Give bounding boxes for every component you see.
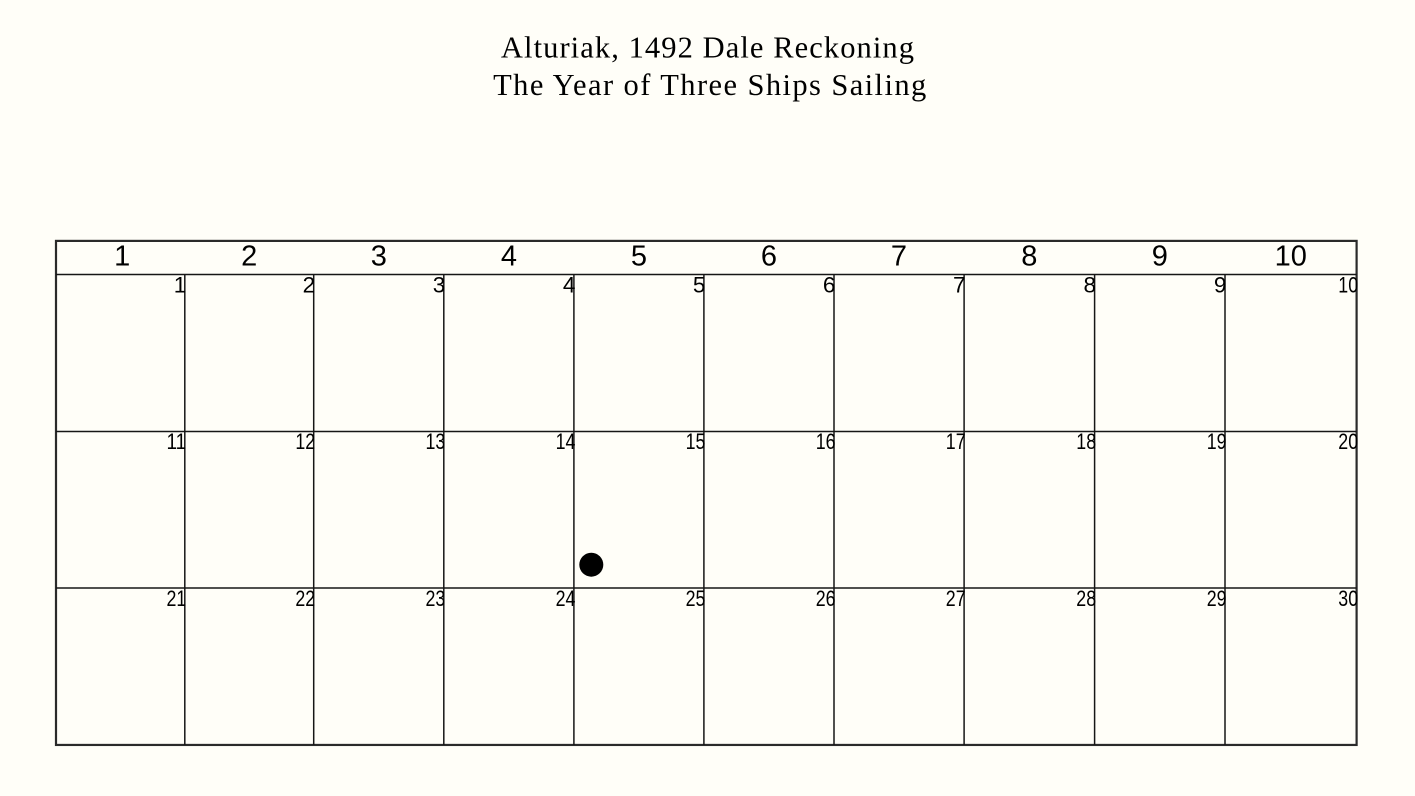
- svg-text:The Year of Three Ships Sailin: The Year of Three Ships Sailing: [493, 68, 928, 102]
- svg-text:13: 13: [426, 429, 446, 454]
- svg-text:1: 1: [114, 241, 130, 273]
- svg-text:14: 14: [556, 429, 576, 454]
- svg-text:6: 6: [761, 241, 777, 273]
- svg-text:1: 1: [174, 272, 187, 297]
- svg-text:8: 8: [1021, 241, 1037, 273]
- svg-text:30: 30: [1338, 586, 1358, 611]
- svg-text:28: 28: [1076, 586, 1096, 611]
- svg-text:20: 20: [1338, 429, 1358, 454]
- svg-text:11: 11: [167, 429, 187, 454]
- svg-text:3: 3: [433, 272, 446, 297]
- svg-text:2: 2: [303, 272, 316, 297]
- svg-text:4: 4: [563, 272, 576, 297]
- svg-text:5: 5: [631, 241, 647, 273]
- svg-text:7: 7: [953, 272, 966, 297]
- svg-text:2: 2: [241, 241, 257, 273]
- svg-text:8: 8: [1084, 272, 1097, 297]
- svg-text:25: 25: [686, 586, 706, 611]
- svg-text:27: 27: [946, 586, 966, 611]
- svg-text:7: 7: [891, 241, 907, 273]
- svg-text:4: 4: [501, 241, 517, 273]
- svg-text:22: 22: [295, 586, 315, 611]
- svg-text:29: 29: [1207, 586, 1227, 611]
- svg-text:16: 16: [816, 429, 836, 454]
- svg-text:21: 21: [167, 586, 187, 611]
- svg-text:24: 24: [556, 586, 576, 611]
- svg-text:15: 15: [686, 429, 706, 454]
- svg-text:12: 12: [295, 429, 315, 454]
- svg-text:10: 10: [1338, 272, 1358, 297]
- svg-text:5: 5: [693, 272, 706, 297]
- svg-text:19: 19: [1207, 429, 1227, 454]
- svg-text:3: 3: [371, 241, 387, 273]
- svg-text:17: 17: [946, 429, 966, 454]
- svg-text:23: 23: [426, 586, 446, 611]
- svg-text:18: 18: [1076, 429, 1096, 454]
- svg-text:6: 6: [823, 272, 836, 297]
- svg-text:9: 9: [1152, 241, 1168, 273]
- svg-text:10: 10: [1275, 241, 1307, 273]
- svg-text:26: 26: [816, 586, 836, 611]
- svg-text:Alturiak, 1492 Dale Reckoning: Alturiak, 1492 Dale Reckoning: [501, 31, 915, 65]
- svg-text:9: 9: [1214, 272, 1227, 297]
